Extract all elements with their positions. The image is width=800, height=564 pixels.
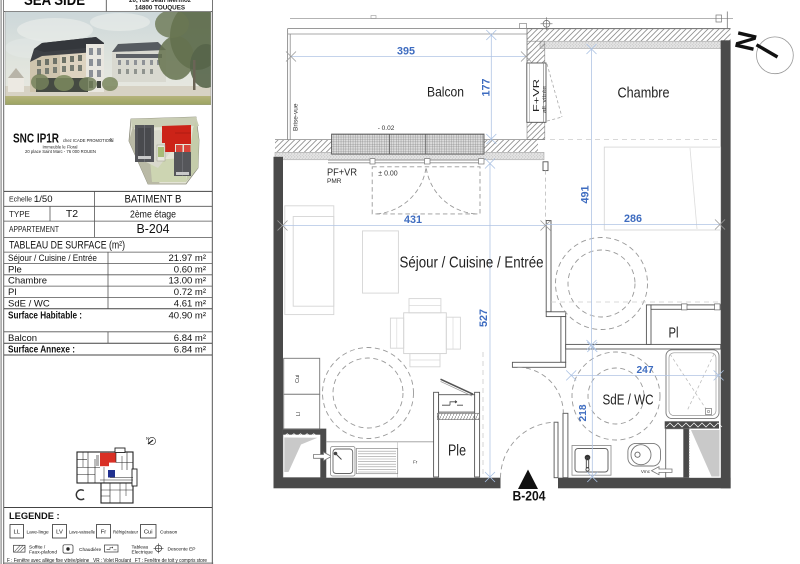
svg-text:B-204: B-204 [513,489,546,504]
svg-text:247: 247 [637,364,654,376]
svg-text:TABLEAU DE SURFACE (m²): TABLEAU DE SURFACE (m²) [9,239,125,251]
svg-text:BATIMENT B: BATIMENT B [125,193,182,205]
svg-text:Ple: Ple [8,264,22,275]
svg-text:286: 286 [624,213,642,225]
svg-text:APPARTEMENT: APPARTEMENT [9,224,59,234]
svg-text:Pl: Pl [669,325,679,342]
svg-text:SEA SIDE: SEA SIDE [24,0,85,9]
svg-text:Echelle :: Echelle : [9,197,36,204]
svg-text:Ple: Ple [448,442,466,459]
svg-text:- 0.02: - 0.02 [378,125,395,132]
svg-text:431: 431 [404,214,422,226]
svg-text:Soffite /: Soffite / [29,544,46,550]
svg-text:21.97 m²: 21.97 m² [169,253,207,264]
svg-text:all. vitrée: all. vitrée [542,86,548,113]
svg-text:chez ICADE PROMOTION: chez ICADE PROMOTION [63,138,112,143]
svg-text:Cuisson: Cuisson [160,529,178,535]
svg-text:B-204: B-204 [137,221,170,236]
svg-text:Séjour / Cuisine / Entrée: Séjour / Cuisine / Entrée [400,254,544,271]
svg-text:Electrique: Electrique [132,549,154,555]
svg-text:Vmc: Vmc [641,469,651,474]
svg-text:LV: LV [56,530,63,536]
svg-text:0.72 m²: 0.72 m² [174,287,206,298]
svg-text:6.84 m²: 6.84 m² [174,333,206,344]
svg-text:2ème étage: 2ème étage [130,208,176,220]
svg-text:6.84 m²: 6.84 m² [174,345,206,356]
svg-text:Fr: Fr [101,530,107,536]
svg-text:Fr: Fr [413,460,418,465]
svg-text:Cui: Cui [144,530,153,536]
svg-text:13.00 m²: 13.00 m² [169,276,207,287]
svg-text:Faux-plafond: Faux-plafond [29,549,57,555]
svg-text:527: 527 [478,309,490,327]
svg-text:20, rue Jean Mermoz: 20, rue Jean Mermoz [129,0,191,4]
svg-text:218: 218 [577,404,589,421]
svg-text:Balcon: Balcon [427,83,464,99]
svg-text:Balcon: Balcon [8,333,37,344]
svg-text:Chambre: Chambre [8,276,47,287]
svg-text:177: 177 [481,79,493,97]
svg-text:Brise-vue: Brise-vue [293,103,300,131]
svg-text:395: 395 [397,46,415,58]
svg-text:Chaudière: Chaudière [79,547,101,553]
svg-text:14800 TOUQUES: 14800 TOUQUES [135,5,185,12]
svg-text:Pl: Pl [8,287,16,298]
svg-text:N: N [146,436,149,441]
svg-text:PF+VR: PF+VR [327,168,357,179]
svg-text:T2: T2 [66,208,78,220]
svg-text:PMR: PMR [327,178,342,185]
svg-text:Ll: Ll [296,412,302,416]
svg-text:N: N [729,28,763,54]
svg-text:491: 491 [580,186,592,204]
svg-text:1/50: 1/50 [34,194,53,205]
svg-text:N: N [110,138,114,144]
svg-text:Lave-linge: Lave-linge [27,529,49,535]
svg-text:20 place Saint Marc - 76 000 R: 20 place Saint Marc - 76 000 ROUEN [25,149,96,154]
svg-text:F+VR: F+VR [531,79,541,112]
svg-text:SdE / WC: SdE / WC [8,298,50,309]
svg-text:Tableau: Tableau [132,544,149,550]
svg-text:F : Fenêtre avec allège fixe v: F : Fenêtre avec allège fixe vitrée/plei… [7,558,207,564]
svg-text:Réfrigérateur: Réfrigérateur [113,529,138,535]
svg-text:Chambre: Chambre [618,85,670,101]
svg-text:Cui: Cui [295,375,301,383]
svg-text:± 0.00: ± 0.00 [378,171,398,178]
svg-text:4.61 m²: 4.61 m² [174,298,206,309]
svg-text:40.90 m²: 40.90 m² [169,310,207,321]
svg-text:Lave-vaisselle: Lave-vaisselle [69,529,95,535]
svg-text:Surface Annexe :: Surface Annexe : [8,345,75,356]
svg-text:TYPE: TYPE [9,210,30,219]
svg-text:0.60 m²: 0.60 m² [174,264,206,275]
svg-text:LL: LL [13,530,20,536]
svg-text:Surface Habitable :: Surface Habitable : [8,310,82,321]
svg-text:Descente EP: Descente EP [168,546,196,552]
svg-text:Séjour / Cuisine / Entrée: Séjour / Cuisine / Entrée [8,253,97,264]
svg-text:SdE / WC: SdE / WC [603,392,654,409]
svg-text:LEGENDE :: LEGENDE : [9,511,60,521]
